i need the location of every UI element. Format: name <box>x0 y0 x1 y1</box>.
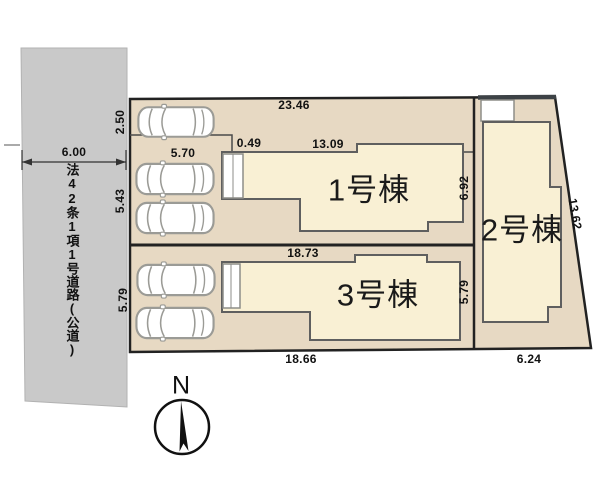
dim-bottom-width-left: 18.66 <box>285 352 317 366</box>
dim-frontage-right: 13.09 <box>312 137 344 151</box>
car-icon <box>136 200 213 236</box>
dim-frontage-step: 0.49 <box>237 136 262 150</box>
dim-left-depth-lot3: 5.79 <box>116 288 130 313</box>
road-label: 法42条1項1号道路(公道) <box>66 163 79 357</box>
lot2-entrance-notch <box>481 100 514 121</box>
site-plan: 1号棟 2号棟 3号棟 法42条1項1号道路(公道) N 23.46 2.50 … <box>0 0 600 499</box>
building-1-label: 1号棟 <box>328 165 410 210</box>
compass-icon <box>155 400 209 454</box>
building-2-label: 2号棟 <box>481 205 563 250</box>
dim-right-depth-lot1: 6.92 <box>457 176 471 201</box>
dim-frontage-left: 5.70 <box>171 146 196 160</box>
car-icon <box>136 305 213 341</box>
dim-top-width: 23.46 <box>278 98 310 112</box>
north-boundary-thick-line <box>478 97 556 98</box>
dim-right-depth-lot3: 5.79 <box>457 280 471 305</box>
dim-road-width: 6.00 <box>62 145 87 159</box>
car-icon <box>136 161 213 197</box>
car-icon <box>138 104 213 139</box>
car-icon <box>137 262 214 298</box>
dim-left-depth-lot1: 5.43 <box>113 189 127 214</box>
building-3-label: 3号棟 <box>337 270 419 315</box>
dim-middle-width: 18.73 <box>287 246 319 260</box>
dim-bottom-width-right: 6.24 <box>517 352 542 366</box>
dim-top-strip-depth: 2.50 <box>113 110 127 135</box>
compass-north-label: N <box>172 372 190 401</box>
